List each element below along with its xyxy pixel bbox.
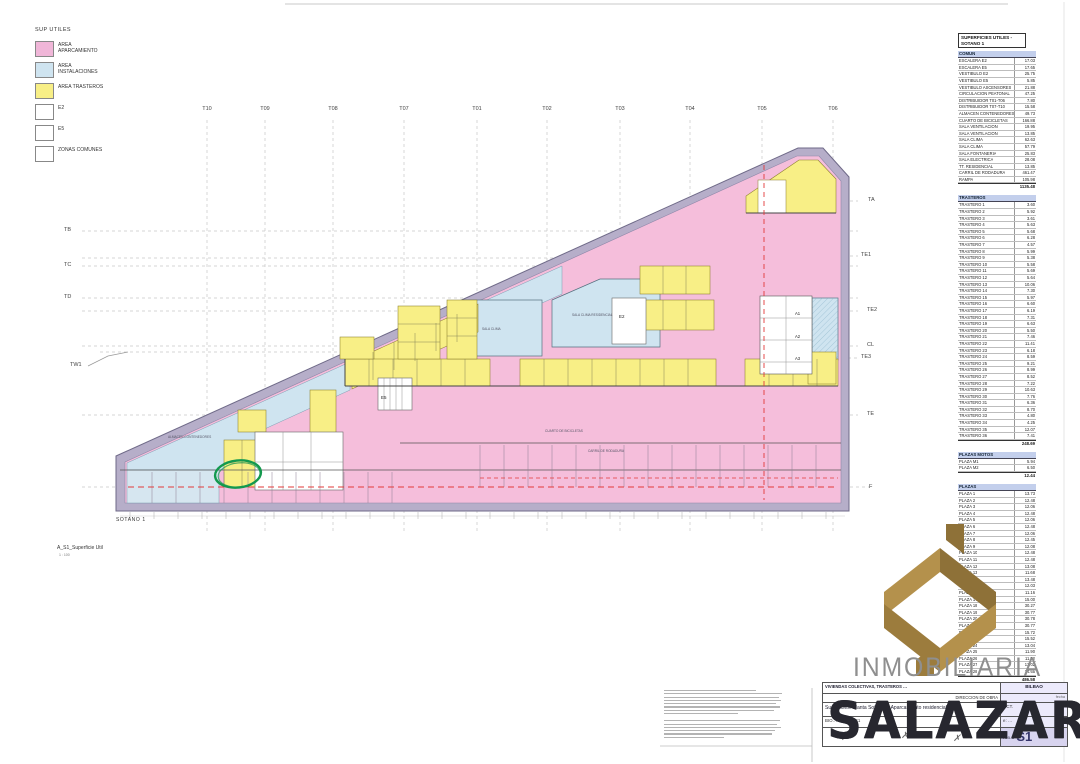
row-label: PLAZA 7 — [958, 531, 975, 537]
row-label: TRASTERO 5 — [958, 229, 985, 235]
row-label: PLAZA 12 — [958, 564, 977, 570]
row-label: TRASTERO 20 — [958, 328, 987, 334]
table-row: TRASTERO 13.60 — [958, 202, 1036, 209]
table-row: PLAZA 1311.68 — [958, 570, 1036, 577]
grid-label-t06: T06 — [828, 106, 837, 112]
table-section: PLAZAS MOTOSPLAZA M15.94PLAZA M26.5012.4… — [958, 452, 1036, 479]
row-label: PLAZA 22 — [958, 630, 977, 636]
row-value: 12.48 — [1014, 557, 1036, 563]
row-label: TRASTERO 13 — [958, 282, 987, 288]
watermark-salazar: SALAZAR — [827, 691, 1077, 751]
surfaces-table: SUPERFICIES UTILES -SOTANO 1 COMUNESCALE… — [958, 33, 1036, 688]
table-row: TRASTERO 2910.63 — [958, 387, 1036, 394]
core-a1-label: A1 — [795, 311, 801, 316]
row-value: 5.97 — [1014, 295, 1036, 301]
row-label: PLAZA M1 — [958, 459, 979, 465]
grid-label-te: TE — [867, 411, 874, 417]
row-value: 12.03 — [1014, 583, 1036, 589]
row-value: 4.57 — [1014, 242, 1036, 248]
row-label: VESTIBULO ASCENSORES — [958, 85, 1011, 91]
row-value: 57.79 — [1014, 144, 1036, 150]
table-row: TRASTERO 259.21 — [958, 361, 1036, 368]
table-row: TRASTERO 3512.07 — [958, 427, 1036, 434]
table-row: TRASTERO 367.41 — [958, 433, 1036, 440]
row-value: 8.70 — [1014, 407, 1036, 413]
table-section-header: PLAZAS MOTOS — [958, 452, 1036, 459]
row-label: TRASTERO 19 — [958, 321, 987, 327]
row-value: 12.48 — [1014, 550, 1036, 556]
table-row: ESCALERA E217.03 — [958, 58, 1036, 65]
table-row: VESTIBULO E55.85 — [958, 78, 1036, 85]
floor-plan-drawing: E5 E2 A1 A2 A3 ALMACEN CONTENEDORES SALA… — [0, 0, 1080, 764]
row-label: CUARTO DE BICICLETAS — [958, 118, 1008, 124]
row-value: 5.68 — [1014, 229, 1036, 235]
table-row: VESTIBULO E225.75 — [958, 71, 1036, 78]
row-value: 12.06 — [1014, 504, 1036, 510]
row-value: 5.85 — [1014, 78, 1036, 84]
note-line — [664, 710, 774, 711]
row-value: 12.08 — [1014, 544, 1036, 550]
table-row: TRASTERO 328.70 — [958, 407, 1036, 414]
row-label: TRASTERO 24 — [958, 354, 987, 360]
note-line — [664, 706, 780, 707]
row-label: RAMPA — [958, 177, 973, 183]
note-line — [664, 693, 782, 694]
row-label: TRASTERO 28 — [958, 381, 987, 387]
row-value: 11.16 — [1014, 590, 1036, 596]
grid-label-t10: T10 — [202, 106, 211, 112]
row-value: 15.72 — [1014, 630, 1036, 636]
row-label: PLAZA 2 — [958, 498, 975, 504]
legend-swatch — [35, 146, 54, 162]
row-value: 7.41 — [1014, 433, 1036, 439]
table-row: SALA ELECTRICA28.08 — [958, 157, 1036, 164]
row-value: 5.92 — [1014, 209, 1036, 215]
room-label-sala-clima: SALA CLIMA — [482, 327, 501, 331]
legend-item: AREA TRASTEROS — [35, 83, 145, 99]
row-value: 12.06 — [1014, 517, 1036, 523]
row-value: 19.95 — [1014, 124, 1036, 130]
tw1-leader — [88, 352, 128, 366]
grid-label-t02: T02 — [542, 106, 551, 112]
section-total-value: 12.44 — [1015, 473, 1036, 479]
legend-swatch — [35, 41, 54, 57]
table-row: TRASTERO 196.63 — [958, 321, 1036, 328]
table-row: TRASTERO 85.99 — [958, 249, 1036, 256]
note-line — [664, 703, 776, 704]
grid-label-t07: T07 — [399, 106, 408, 112]
row-label: TRASTERO 1 — [958, 202, 985, 208]
row-value: 47.25 — [1014, 91, 1036, 97]
table-row: PLAZA 912.08 — [958, 544, 1036, 551]
row-value: 461.47 — [1014, 170, 1036, 176]
table-section: COMUNESCALERA E217.03ESCALERA E517.65VES… — [958, 51, 1036, 190]
row-label: SALA ELECTRICA — [958, 157, 993, 163]
drawing-scale: 1 : 100 — [59, 553, 70, 557]
table-row: TRASTERO 166.60 — [958, 301, 1036, 308]
row-label: PLAZA 11 — [958, 557, 977, 563]
row-label: PLAZA 6 — [958, 524, 975, 530]
legend-item-label: AREA TRASTEROS — [58, 83, 106, 90]
note-line — [664, 690, 756, 691]
row-label: TRASTERO 7 — [958, 242, 985, 248]
core-a3-label: A3 — [795, 356, 801, 361]
table-section-header: TRASTEROS — [958, 195, 1036, 202]
row-label: SALA CLIMA — [958, 137, 983, 143]
table-row: DISTRIBUIDOR T01-T067.80 — [958, 98, 1036, 105]
row-value: 10.63 — [1014, 387, 1036, 393]
table-row: SALA VENTILACION13.85 — [958, 131, 1036, 138]
grid-label-t05: T05 — [757, 106, 766, 112]
row-value: 7.80 — [1014, 98, 1036, 104]
table-row: TRASTERO 316.36 — [958, 400, 1036, 407]
table-row: PLAZA 1512.03 — [958, 583, 1036, 590]
row-label: PLAZA 3 — [958, 504, 975, 510]
table-row: TRASTERO 45.63 — [958, 222, 1036, 229]
grid-label-te2: TE2 — [867, 307, 877, 313]
table-row: PLAZA 113.73 — [958, 491, 1036, 498]
note-line — [664, 724, 777, 725]
table-row: PLAZA 812.45 — [958, 537, 1036, 544]
row-label: SALA VENTILACION — [958, 131, 998, 137]
table-row: TRASTERO 268.99 — [958, 367, 1036, 374]
section-total: 12.44 — [958, 472, 1036, 479]
stair-e5-label: E5 — [381, 395, 387, 400]
row-value: 7.22 — [1014, 381, 1036, 387]
row-label: TRASTERO 4 — [958, 222, 985, 228]
table-row: ESCALERA E517.65 — [958, 65, 1036, 72]
table-row: SALA VENTILACION19.95 — [958, 124, 1036, 131]
row-value: 15.52 — [1014, 636, 1036, 642]
row-label: PLAZA 4 — [958, 511, 975, 517]
row-value: 5.94 — [1014, 459, 1036, 465]
row-value: 12.48 — [1014, 498, 1036, 504]
table-row: TRASTERO 236.18 — [958, 348, 1036, 355]
legend-swatch — [35, 104, 54, 120]
table-row: PLAZA M26.50 — [958, 465, 1036, 472]
row-label: PLAZA 13 — [958, 570, 977, 576]
table-row: PLAZA 2413.04 — [958, 643, 1036, 650]
row-label: PLAZA 23 — [958, 636, 977, 642]
row-value: 6.63 — [1014, 321, 1036, 327]
row-value: 15.00 — [1014, 597, 1036, 603]
core-e2-label: E2 — [619, 314, 625, 319]
row-value: 6.50 — [1014, 465, 1036, 471]
table-row: PLAZA 1413.48 — [958, 577, 1036, 584]
row-label: TRASTERO 18 — [958, 315, 987, 321]
row-value: 5.38 — [1014, 255, 1036, 261]
row-label: PLAZA 5 — [958, 517, 975, 523]
table-row: TRASTERO 125.64 — [958, 275, 1036, 282]
row-value: 13.73 — [1014, 491, 1036, 497]
row-label: SALA VENTILACION — [958, 124, 998, 130]
legend-swatch — [35, 83, 54, 99]
table-row: SALA CLIMA62.63 — [958, 137, 1036, 144]
note-line — [664, 720, 780, 721]
section-total-value: 1135.48 — [1015, 184, 1036, 190]
table-row: TRASTERO 55.68 — [958, 229, 1036, 236]
row-label: TRASTERO 6 — [958, 235, 985, 241]
row-label: TRASTERO 26 — [958, 367, 987, 373]
table-row: TRASTERO 205.50 — [958, 328, 1036, 335]
row-value: 4.80 — [1014, 413, 1036, 419]
row-label: PLAZA 1 — [958, 491, 975, 497]
row-label: TRASTERO 30 — [958, 394, 987, 400]
legend-item-label: E2 — [58, 104, 106, 111]
grid-label-te1: TE1 — [861, 252, 871, 258]
row-value: 10.06 — [1014, 282, 1036, 288]
table-row: TRASTERO 155.97 — [958, 295, 1036, 302]
surfaces-table-title: SUPERFICIES UTILES -SOTANO 1 — [958, 33, 1026, 48]
row-label: TRASTERO 3 — [958, 216, 985, 222]
row-value: 25.83 — [1014, 151, 1036, 157]
core-a2-label: A2 — [795, 334, 801, 339]
row-value: 25.75 — [1014, 71, 1036, 77]
row-label: PLAZA 24 — [958, 643, 977, 649]
legend-title: SUP UTILES — [35, 27, 145, 33]
row-value: 4.25 — [1014, 420, 1036, 426]
row-value: 49.73 — [1014, 111, 1036, 117]
row-value: 13.85 — [1014, 131, 1036, 137]
row-value: 13.48 — [1014, 577, 1036, 583]
row-value: 5.50 — [1014, 328, 1036, 334]
row-value: 30.77 — [1014, 610, 1036, 616]
row-label: CIRCULACION PEATONAL — [958, 91, 1010, 97]
table-section: TRASTEROSTRASTERO 13.60TRASTERO 25.92TRA… — [958, 195, 1036, 446]
row-label: PLAZA 9 — [958, 544, 975, 550]
row-label: TT. RESIDENCIAL — [958, 164, 993, 170]
note-line — [664, 727, 781, 728]
table-row: TRASTERO 95.38 — [958, 255, 1036, 262]
note-line — [664, 737, 724, 738]
row-value: 5.69 — [1014, 268, 1036, 274]
room-label-sala-clima-res: SALA CLIMA RESIDENCIAL — [572, 313, 613, 317]
row-value: 12.48 — [1014, 524, 1036, 530]
row-value: 17.65 — [1014, 65, 1036, 71]
row-label: ALMACEN CONTENEDORES — [958, 111, 1014, 117]
row-label: PLAZA 17 — [958, 597, 977, 603]
room-label-almacen: ALMACEN CONTENEDORES — [168, 435, 211, 439]
row-value: 8.59 — [1014, 354, 1036, 360]
grid-label-tw1: TW1 — [70, 362, 82, 368]
grid-label-f: F — [869, 484, 872, 490]
row-label: ESCALERA E5 — [958, 65, 987, 71]
row-label: PLAZA 15 — [958, 583, 977, 589]
watermark-inmobiliaria: INMOBILIARIA — [853, 652, 1065, 683]
row-value: 11.68 — [1014, 570, 1036, 576]
table-row: RAMPA105.98 — [958, 177, 1036, 184]
row-label: PLAZA 16 — [958, 590, 977, 596]
table-row: CIRCULACION PEATONAL47.25 — [958, 91, 1036, 98]
row-label: TRASTERO 14 — [958, 288, 987, 294]
row-label: TRASTERO 10 — [958, 262, 987, 268]
legend-item: ZONAS COMUNES — [35, 146, 145, 162]
grid-label-cl: CL — [867, 342, 874, 348]
floor-label: SOTANO 1 — [116, 517, 146, 523]
table-row: ALMACEN CONTENEDORES49.73 — [958, 111, 1036, 118]
row-label: TRASTERO 9 — [958, 255, 985, 261]
legend-item-label: E5 — [58, 125, 106, 132]
row-label: TRASTERO 2 — [958, 209, 985, 215]
section-total-value: 248.69 — [1015, 441, 1036, 447]
row-label: TRASTERO 15 — [958, 295, 987, 301]
table-row: PLAZA 712.06 — [958, 531, 1036, 538]
row-label: PLAZA 21 — [958, 623, 977, 629]
table-row: SALA FONTANERIA25.83 — [958, 151, 1036, 158]
row-value: 9.21 — [1014, 361, 1036, 367]
row-value: 30.27 — [1014, 603, 1036, 609]
table-row: TRASTERO 334.80 — [958, 413, 1036, 420]
table-row: TRASTERO 105.58 — [958, 262, 1036, 269]
table-row: TRASTERO 344.25 — [958, 420, 1036, 427]
row-label: SALA FONTANERIA — [958, 151, 996, 157]
grid-label-t09: T09 — [260, 106, 269, 112]
table-row: CARRIL DE RODADURA461.47 — [958, 170, 1036, 177]
grid-label-td: TD — [64, 294, 71, 300]
table-row: TT. RESIDENCIAL13.85 — [958, 164, 1036, 171]
row-value: 7.30 — [1014, 288, 1036, 294]
table-row: TRASTERO 217.46 — [958, 334, 1036, 341]
table-row: PLAZA 412.48 — [958, 511, 1036, 518]
row-label: PLAZA 8 — [958, 537, 975, 543]
row-label: DISTRIBUIDOR T07-T10 — [958, 104, 1005, 110]
table-section-header: COMUN — [958, 51, 1036, 58]
note-line — [664, 730, 775, 731]
table-row: TRASTERO 74.57 — [958, 242, 1036, 249]
legend-item: E5 — [35, 125, 145, 141]
table-row: TRASTERO 176.19 — [958, 308, 1036, 315]
row-value: 8.99 — [1014, 367, 1036, 373]
table-row: TRASTERO 307.76 — [958, 394, 1036, 401]
row-value: 6.36 — [1014, 400, 1036, 406]
table-row: TRASTERO 1310.06 — [958, 282, 1036, 289]
section-total: 248.69 — [958, 440, 1036, 447]
note-line — [664, 713, 738, 714]
table-row: TRASTERO 248.59 — [958, 354, 1036, 361]
table-row: PLAZA 1830.27 — [958, 603, 1036, 610]
row-value: 13.08 — [1014, 564, 1036, 570]
row-label: TRASTERO 17 — [958, 308, 987, 314]
table-row: PLAZA 1715.00 — [958, 597, 1036, 604]
table-row: PLAZA 2315.52 — [958, 636, 1036, 643]
table-row: PLAZA 1012.48 — [958, 550, 1036, 557]
table-row: TRASTERO 2211.41 — [958, 341, 1036, 348]
row-value: 6.18 — [1014, 348, 1036, 354]
row-label: TRASTERO 21 — [958, 334, 987, 340]
table-row: TRASTERO 25.92 — [958, 209, 1036, 216]
row-label: TRASTERO 8 — [958, 249, 985, 255]
legend-swatch — [35, 125, 54, 141]
scanned-plan-sheet: { "legend": { "title": "SUP UTILES", "it… — [0, 0, 1080, 764]
table-row: PLAZA M15.94 — [958, 459, 1036, 466]
row-label: TRASTERO 33 — [958, 413, 987, 419]
row-value: 15.58 — [1014, 104, 1036, 110]
row-value: 6.60 — [1014, 301, 1036, 307]
table-row: TRASTERO 278.52 — [958, 374, 1036, 381]
row-label: TRASTERO 34 — [958, 420, 987, 426]
table-row: PLAZA 1213.08 — [958, 564, 1036, 571]
table-section-header: PLAZAS — [958, 484, 1036, 491]
table-row: TRASTERO 66.28 — [958, 235, 1036, 242]
row-label: TRASTERO 12 — [958, 275, 987, 281]
legend-item: E2 — [35, 104, 145, 120]
row-label: ESCALERA E2 — [958, 58, 987, 64]
row-value: 7.46 — [1014, 334, 1036, 340]
note-line — [664, 700, 781, 701]
table-row: PLAZA 1930.77 — [958, 610, 1036, 617]
row-label: TRASTERO 16 — [958, 301, 987, 307]
row-value: 12.07 — [1014, 427, 1036, 433]
row-label: PLAZA 20 — [958, 616, 977, 622]
row-label: TRASTERO 22 — [958, 341, 987, 347]
row-value: 13.04 — [1014, 643, 1036, 649]
row-label: DISTRIBUIDOR T01-T06 — [958, 98, 1005, 104]
grid-label-tb: TB — [64, 227, 71, 233]
row-label: TRASTERO 27 — [958, 374, 987, 380]
table-row: PLAZA 2215.72 — [958, 630, 1036, 637]
row-value: 17.03 — [1014, 58, 1036, 64]
row-label: TRASTERO 25 — [958, 361, 987, 367]
row-label: TRASTERO 29 — [958, 387, 987, 393]
row-value: 11.41 — [1014, 341, 1036, 347]
grid-label-te3: TE3 — [861, 354, 871, 360]
row-value: 12.48 — [1014, 511, 1036, 517]
table-row: PLAZA 312.06 — [958, 504, 1036, 511]
row-value: 5.58 — [1014, 262, 1036, 268]
table-row: DISTRIBUIDOR T07-T1015.58 — [958, 104, 1036, 111]
grid-label-t04: T04 — [685, 106, 694, 112]
table-row: CUARTO DE BICICLETAS166.88 — [958, 118, 1036, 125]
grid-label-t03: T03 — [615, 106, 624, 112]
row-label: PLAZA 18 — [958, 603, 977, 609]
room-label-bicicletas: CUARTO DE BICICLETAS — [545, 429, 583, 433]
legend-swatch — [35, 62, 54, 78]
legend-item: AREA INSTALACIONES — [35, 62, 145, 78]
grid-label-tc: TC — [64, 262, 71, 268]
row-label: PLAZA 10 — [958, 550, 977, 556]
row-value: 105.98 — [1014, 177, 1036, 183]
legend-item-label: AREA INSTALACIONES — [58, 62, 106, 75]
row-value: 3.61 — [1014, 216, 1036, 222]
row-value: 5.63 — [1014, 222, 1036, 228]
section-total: 1135.48 — [958, 183, 1036, 190]
table-row: TRASTERO 115.69 — [958, 268, 1036, 275]
row-label: TRASTERO 11 — [958, 268, 987, 274]
table-row: PLAZA 512.06 — [958, 517, 1036, 524]
row-label: TRASTERO 32 — [958, 407, 987, 413]
row-label: TRASTERO 35 — [958, 427, 987, 433]
table-row: VESTIBULO ASCENSORES21.88 — [958, 85, 1036, 92]
row-value: 13.85 — [1014, 164, 1036, 170]
table-row: PLAZA 1611.16 — [958, 590, 1036, 597]
notes-paragraph — [664, 690, 784, 740]
legend-item: AREA APARCAMIENTO — [35, 41, 145, 57]
legend-item-label: AREA APARCAMIENTO — [58, 41, 106, 54]
row-value: 166.88 — [1014, 118, 1036, 124]
table-row: PLAZA 2130.77 — [958, 623, 1036, 630]
legend-item-label: ZONAS COMUNES — [58, 146, 106, 153]
table-row: SALA CLIMA57.79 — [958, 144, 1036, 151]
table-row: TRASTERO 33.61 — [958, 216, 1036, 223]
table-row: TRASTERO 147.30 — [958, 288, 1036, 295]
row-value: 21.88 — [1014, 85, 1036, 91]
row-value: 6.19 — [1014, 308, 1036, 314]
row-label: TRASTERO 36 — [958, 433, 987, 439]
row-value: 5.99 — [1014, 249, 1036, 255]
row-label: PLAZA 14 — [958, 577, 977, 583]
row-label: VESTIBULO E2 — [958, 71, 988, 77]
table-row: PLAZA 612.48 — [958, 524, 1036, 531]
